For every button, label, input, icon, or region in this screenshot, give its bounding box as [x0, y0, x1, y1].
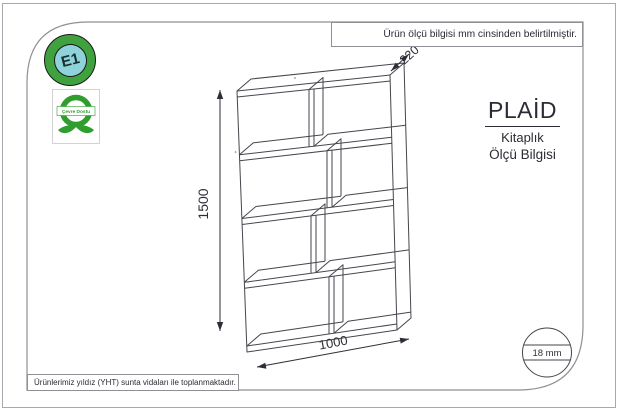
top-note-box: Ürün ölçü bilgisi mm cinsinden belirtilm… — [331, 22, 583, 47]
bottom-note-text: Ürünlerimiz yıldız (YHT) sunta vidaları … — [34, 378, 236, 387]
top-note-text: Ürün ölçü bilgisi mm cinsinden belirtilm… — [383, 29, 577, 40]
bottom-note-box: Ürünlerimiz yıldız (YHT) sunta vidaları … — [27, 374, 239, 391]
inner-frame — [27, 22, 583, 390]
dimension-sheet: 1500 1000 220 18 mm Ürün ölçü bilgisi mm… — [0, 0, 620, 413]
width-dimension-label: 1000 — [318, 333, 349, 353]
product-title-block: PLAİD Kitaplık Ölçü Bilgisi — [450, 96, 595, 164]
eco-friendly-badge: Çevre Dostu — [52, 89, 100, 144]
e1-certificate-badge: E1 — [44, 34, 96, 86]
e1-badge-label: E1 — [59, 50, 81, 71]
eco-badge-label: Çevre Dostu — [62, 109, 90, 115]
product-category: Kitaplık — [450, 130, 595, 146]
product-name: PLAİD — [485, 96, 560, 127]
thickness-label: 18 mm — [532, 348, 561, 359]
height-dimension-label: 1500 — [195, 188, 211, 219]
thickness-symbol: 18 mm — [523, 328, 572, 377]
product-info-label: Ölçü Bilgisi — [450, 147, 595, 164]
bookshelf-drawing — [235, 63, 411, 352]
e1-badge-inner: E1 — [50, 40, 90, 80]
